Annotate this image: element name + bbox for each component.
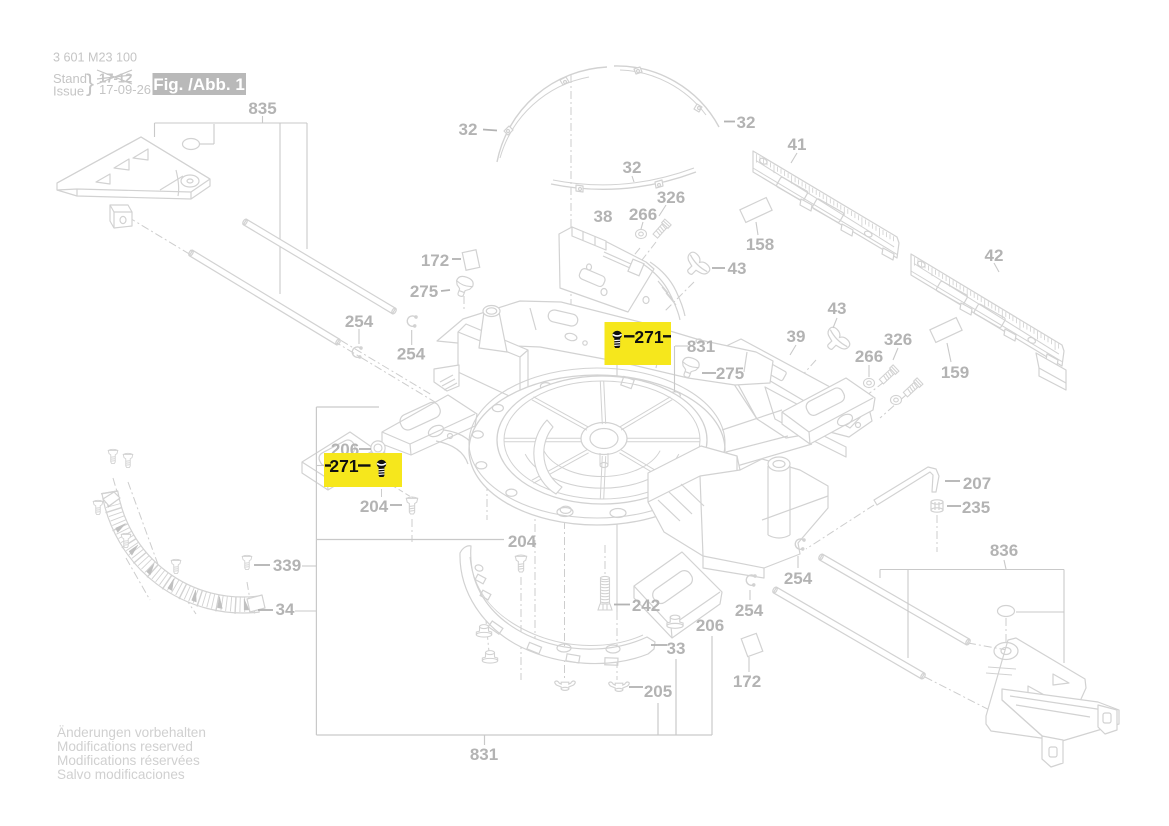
svg-text:43: 43 <box>728 259 747 278</box>
svg-text:266: 266 <box>855 347 883 366</box>
svg-text:271: 271 <box>634 327 663 347</box>
svg-text:266: 266 <box>629 205 657 224</box>
svg-text:206: 206 <box>696 616 724 635</box>
svg-text:271: 271 <box>329 456 358 476</box>
svg-text:204: 204 <box>360 497 389 516</box>
svg-text:339: 339 <box>273 556 301 575</box>
svg-text:835: 835 <box>248 99 276 118</box>
svg-text:254: 254 <box>397 345 426 364</box>
svg-text:207: 207 <box>963 474 991 493</box>
svg-text:3 601 M23 100: 3 601 M23 100 <box>53 51 137 65</box>
svg-text:Modifications reserved: Modifications reserved <box>57 739 193 754</box>
svg-text:Änderungen vorbehalten: Änderungen vorbehalten <box>57 725 206 740</box>
svg-text:831: 831 <box>470 745 498 764</box>
svg-text:235: 235 <box>962 498 990 517</box>
svg-text:33: 33 <box>667 639 686 658</box>
svg-text:Fig. /Abb. 1: Fig. /Abb. 1 <box>153 75 245 94</box>
svg-text:275: 275 <box>410 282 438 301</box>
svg-text:43: 43 <box>828 299 847 318</box>
svg-text:254: 254 <box>345 312 374 331</box>
svg-text:275: 275 <box>716 364 744 383</box>
svg-text:42: 42 <box>985 246 1004 265</box>
svg-text:326: 326 <box>884 330 912 349</box>
svg-text:39: 39 <box>787 327 806 346</box>
svg-text:205: 205 <box>644 682 672 701</box>
svg-text:Salvo modificaciones: Salvo modificaciones <box>57 767 185 782</box>
svg-text:159: 159 <box>941 363 969 382</box>
svg-text:254: 254 <box>784 569 813 588</box>
svg-text:32: 32 <box>623 158 642 177</box>
svg-text:Modifications réservées: Modifications réservées <box>57 753 200 768</box>
svg-text:17-09-26: 17-09-26 <box>99 82 151 97</box>
svg-text:242: 242 <box>632 596 660 615</box>
svg-text:326: 326 <box>657 188 685 207</box>
svg-text:32: 32 <box>737 113 756 132</box>
svg-text:Issue: Issue <box>53 84 84 99</box>
svg-text:34: 34 <box>276 600 295 619</box>
svg-text:32: 32 <box>459 120 478 139</box>
svg-text:836: 836 <box>990 541 1018 560</box>
svg-text:204: 204 <box>508 532 537 551</box>
svg-text:}: } <box>86 70 94 97</box>
svg-text:254: 254 <box>735 601 764 620</box>
svg-text:38: 38 <box>594 207 613 226</box>
svg-text:172: 172 <box>421 251 449 270</box>
svg-text:41: 41 <box>788 135 807 154</box>
svg-text:831: 831 <box>687 337 715 356</box>
svg-text:158: 158 <box>746 235 774 254</box>
svg-text:172: 172 <box>733 672 761 691</box>
